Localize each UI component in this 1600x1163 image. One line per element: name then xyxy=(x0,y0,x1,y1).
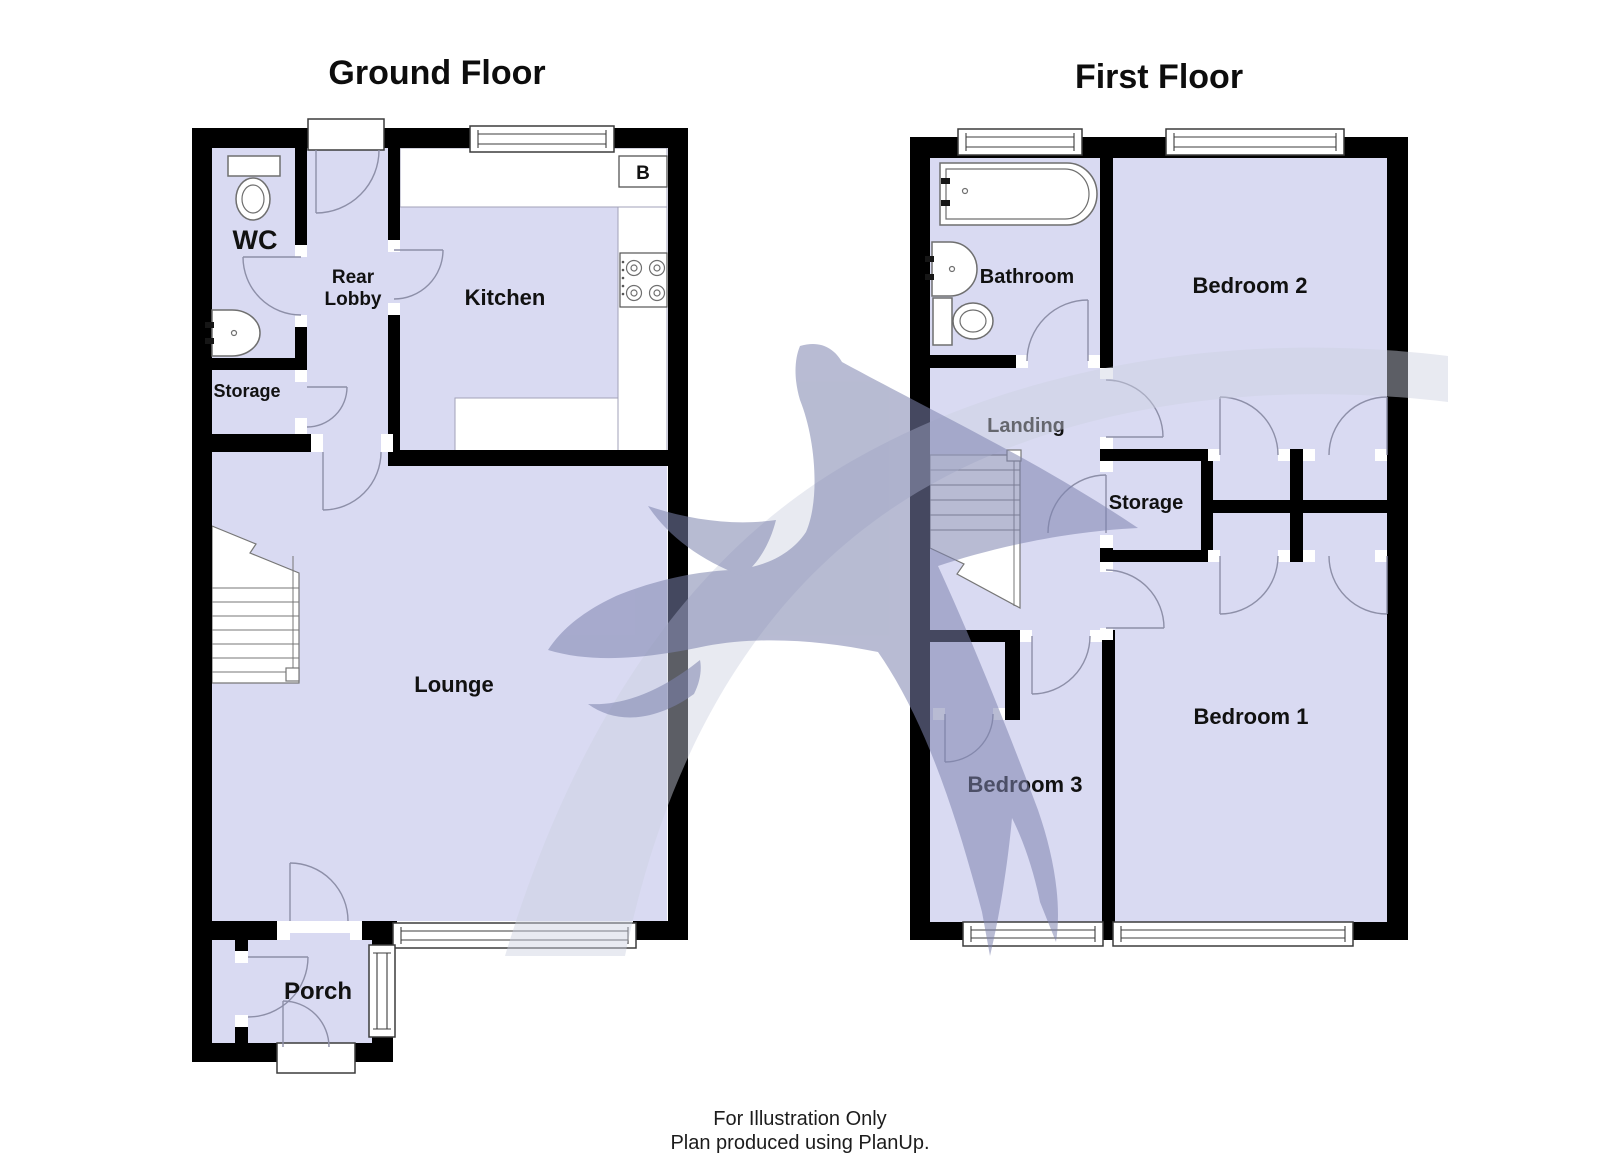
floorplan-drawing: Ground Floor B xyxy=(0,0,1600,1163)
room-label-bedroom2: Bedroom 2 xyxy=(1193,273,1308,298)
bedroom1-window xyxy=(1113,922,1353,946)
footer-line1: For Illustration Only xyxy=(713,1108,886,1130)
room-label-storage-ground: Storage xyxy=(213,381,280,401)
bedroom2-window xyxy=(1166,129,1344,155)
bath-symbol xyxy=(940,163,1097,225)
room-label-storage-first: Storage xyxy=(1109,492,1183,514)
ground-floor-title: Ground Floor xyxy=(328,54,545,92)
room-label-bedroom1: Bedroom 1 xyxy=(1194,704,1309,729)
bathroom-sink-symbol xyxy=(925,242,977,296)
boiler-box: B xyxy=(619,156,667,187)
floorplan-page: Ground Floor B xyxy=(0,0,1600,1163)
boiler-label: B xyxy=(636,163,650,184)
hob-symbol xyxy=(620,253,667,307)
room-label-rear-lobby-2: Lobby xyxy=(325,289,382,310)
porch-side-window xyxy=(369,945,395,1037)
bedroom3-window xyxy=(963,922,1103,946)
wc-sink-symbol xyxy=(205,310,260,356)
room-label-porch: Porch xyxy=(284,978,352,1005)
room-label-kitchen: Kitchen xyxy=(465,285,546,310)
room-label-lounge: Lounge xyxy=(414,672,493,697)
front-door-threshold xyxy=(277,1043,355,1073)
room-label-bathroom: Bathroom xyxy=(980,266,1074,288)
bathroom-window xyxy=(958,129,1082,155)
room-label-rear-lobby-1: Rear xyxy=(332,267,375,288)
footer-note: For Illustration Only Plan produced usin… xyxy=(670,1108,929,1154)
back-door-threshold xyxy=(308,119,384,150)
room-label-wc: WC xyxy=(233,225,278,255)
footer-line2: Plan produced using PlanUp. xyxy=(670,1132,929,1154)
kitchen-window xyxy=(470,126,614,152)
first-floor-title: First Floor xyxy=(1075,58,1243,96)
